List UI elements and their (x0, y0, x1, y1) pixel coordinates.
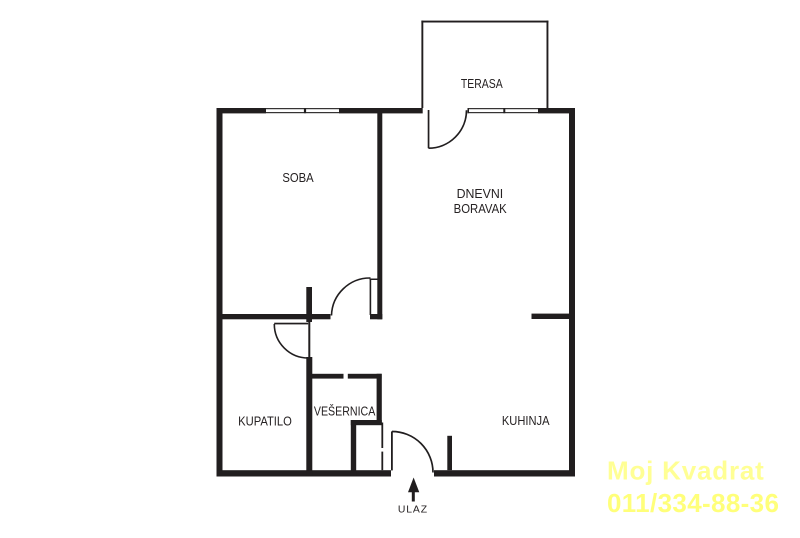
svg-text:Moj Kvadrat: Moj Kvadrat (607, 455, 765, 485)
svg-text:KUPATILO: KUPATILO (238, 414, 292, 429)
svg-text:011/334-88-36: 011/334-88-36 (607, 488, 779, 518)
svg-text:BORAVAK: BORAVAK (454, 201, 507, 216)
svg-text:KUHINJA: KUHINJA (502, 413, 550, 428)
svg-text:VEŠERNICA: VEŠERNICA (314, 404, 376, 418)
svg-text:TERASA: TERASA (461, 78, 503, 91)
svg-text:SOBA: SOBA (282, 170, 313, 185)
svg-text:DNEVNI: DNEVNI (457, 187, 504, 201)
svg-text:ULAZ: ULAZ (398, 505, 428, 516)
